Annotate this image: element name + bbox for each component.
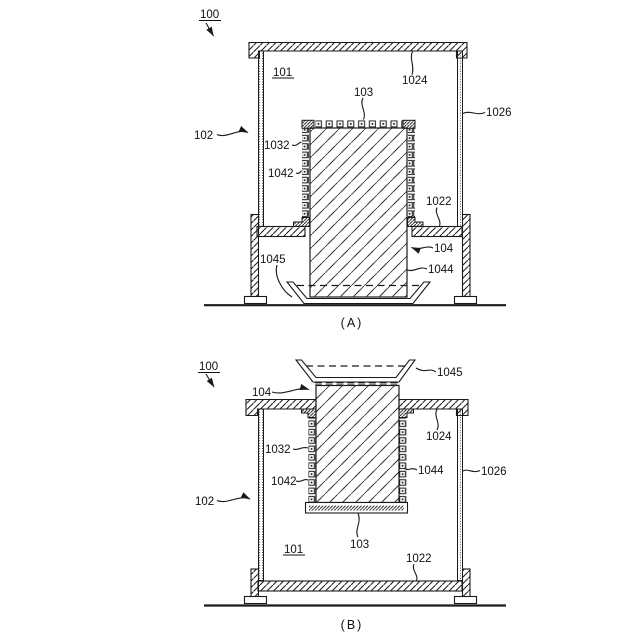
ref-label-1024-a: 1024: [402, 75, 428, 87]
ref-102-arrow-b: [217, 498, 250, 502]
ref-label-103-a: 103: [354, 87, 373, 99]
chain-seat-left-a: [294, 218, 310, 227]
ref-label-1045-b: 1045: [437, 367, 463, 379]
ref-label-1024-b: 1024: [426, 431, 452, 443]
base-foot-right-a: [455, 297, 477, 304]
ref-label-102-b: 102: [195, 496, 214, 508]
crucible-tray-b: [296, 360, 415, 382]
ref-1042-leader-a: [296, 171, 302, 174]
block-base-plate-fill-b: [309, 506, 404, 511]
ref-1045-leader-b: [416, 368, 436, 372]
ref-label-1044-b: 1044: [418, 465, 444, 477]
chain-corner-top-right-a: [403, 120, 415, 128]
floor-plate-left-a: [257, 227, 305, 237]
chamber-bottom-plate-b: [258, 581, 462, 591]
ref-103-leader-b: [357, 514, 359, 538]
ingot-block-b: [316, 386, 399, 503]
ref-1026-leader-b: [463, 470, 480, 472]
ref-label-104-a: 104: [434, 243, 454, 255]
patent-figure-page: 100 101 1024 103 1026 102 1032 1042 1022…: [0, 0, 640, 640]
base-foot-left-b: [245, 597, 267, 604]
ref-102-arrow-a: [217, 131, 248, 135]
base-wall-left-b: [251, 569, 259, 597]
ref-1044-leader-b: [405, 469, 418, 471]
ingot-block-a: [310, 128, 407, 297]
heater-chain-left-b: [309, 418, 316, 502]
base-wall-left-a: [251, 215, 259, 297]
caption-view-a: (A): [341, 316, 364, 330]
ref-label-101-a: 101: [273, 67, 292, 79]
ref-1032-leader-a: [292, 142, 302, 145]
ref-1026-leader-a: [463, 112, 485, 113]
ref-label-1044-a: 1044: [428, 264, 454, 276]
base-foot-right-b: [455, 597, 477, 604]
ref-100-arrow-b: [206, 374, 214, 387]
ref-label-1032-b: 1032: [265, 444, 291, 456]
ref-104-arrow-b: [272, 389, 309, 393]
ref-label-1042-a: 1042: [268, 168, 294, 180]
ref-label-1042-b: 1042: [271, 476, 297, 488]
chain-seat-right-a: [408, 218, 424, 227]
ref-label-1022-b: 1022: [406, 553, 432, 565]
ref-label-1026-b: 1026: [481, 466, 507, 478]
ref-1022-leader-b: [413, 564, 417, 581]
chain-seat-right-b: [399, 409, 414, 418]
ref-1044-leader-a: [408, 268, 428, 271]
base-foot-left-a: [245, 297, 267, 304]
ref-1042-leader-b: [296, 480, 308, 482]
ref-label-1045-a: 1045: [260, 254, 286, 266]
chain-corner-top-left-a: [302, 120, 314, 128]
ref-100-arrow-a: [206, 23, 214, 36]
chamber-wall-right-a: [458, 51, 463, 227]
ref-1024-leader-a: [411, 52, 413, 75]
base-wall-right-a: [463, 215, 471, 297]
chamber-wall-left-b: [259, 409, 264, 581]
base-wall-right-b: [463, 569, 471, 597]
ref-label-101-b: 101: [284, 544, 303, 556]
ref-1032-leader-b: [293, 448, 308, 450]
ref-label-102-a: 102: [194, 130, 213, 142]
heater-chain-right-b: [400, 418, 407, 502]
heater-chain-left-a: [302, 129, 309, 218]
ref-104-arrow-a: [412, 247, 434, 249]
caption-view-b: (B): [341, 618, 364, 632]
chamber-lid-a: [249, 43, 467, 59]
ref-label-1026-a: 1026: [486, 107, 512, 119]
ref-label-100-a: 100: [200, 9, 219, 21]
chamber-wall-right-b: [458, 409, 463, 581]
figure-b: 100 1045 104 1024 1032 1026 1044 1042 10…: [195, 360, 507, 632]
heater-chain-right-a: [408, 129, 415, 218]
ref-label-104-b: 104: [252, 387, 272, 399]
chain-seat-left-b: [302, 409, 317, 418]
heater-chain-top-a: [316, 120, 403, 128]
ref-label-1032-a: 1032: [264, 140, 290, 152]
figure-svg: 100 101 1024 103 1026 102 1032 1042 1022…: [0, 0, 640, 640]
ref-103-leader-a: [362, 98, 365, 120]
chamber-wall-left-a: [259, 51, 264, 227]
figure-a: 100 101 1024 103 1026 102 1032 1042 1022…: [194, 9, 512, 330]
ref-label-1022-a: 1022: [426, 196, 452, 208]
floor-plate-right-a: [412, 227, 462, 237]
ref-label-100-b: 100: [199, 361, 218, 373]
ref-1022-leader-a: [436, 208, 440, 227]
ref-1024-leader-b: [436, 410, 438, 431]
ref-1045-leader-a: [276, 265, 292, 297]
ref-label-103-b: 103: [350, 539, 369, 551]
